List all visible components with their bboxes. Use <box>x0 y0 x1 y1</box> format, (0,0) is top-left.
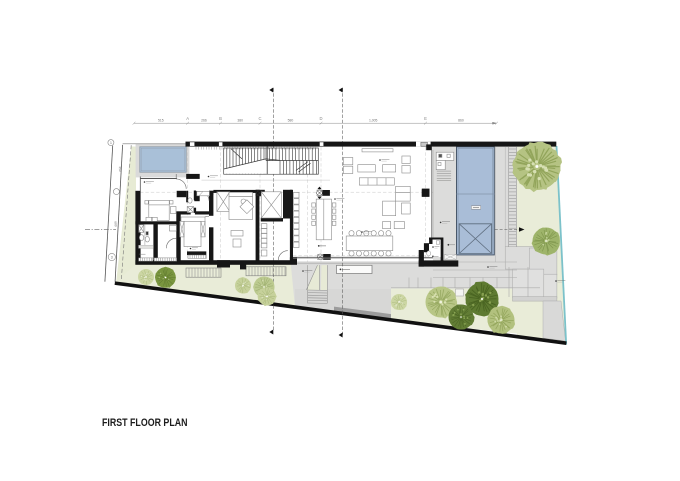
svg-text:A: A <box>186 116 189 121</box>
svg-text:1,005: 1,005 <box>369 119 378 123</box>
svg-text:1: 1 <box>110 141 112 145</box>
svg-text:580: 580 <box>288 119 294 123</box>
svg-text:3: 3 <box>111 255 113 259</box>
svg-text:860: 860 <box>458 119 464 123</box>
svg-text:266: 266 <box>201 119 207 123</box>
svg-text:C: C <box>258 116 261 121</box>
svg-text:D: D <box>319 116 322 121</box>
svg-text:FIRST FLOOR PLAN: FIRST FLOOR PLAN <box>102 417 188 429</box>
svg-text:380: 380 <box>237 119 243 123</box>
svg-text:B: B <box>219 116 222 121</box>
svg-text:600: 600 <box>113 221 117 227</box>
svg-text:E: E <box>424 116 427 121</box>
svg-text:515: 515 <box>158 119 164 123</box>
svg-text:350: 350 <box>118 166 122 172</box>
